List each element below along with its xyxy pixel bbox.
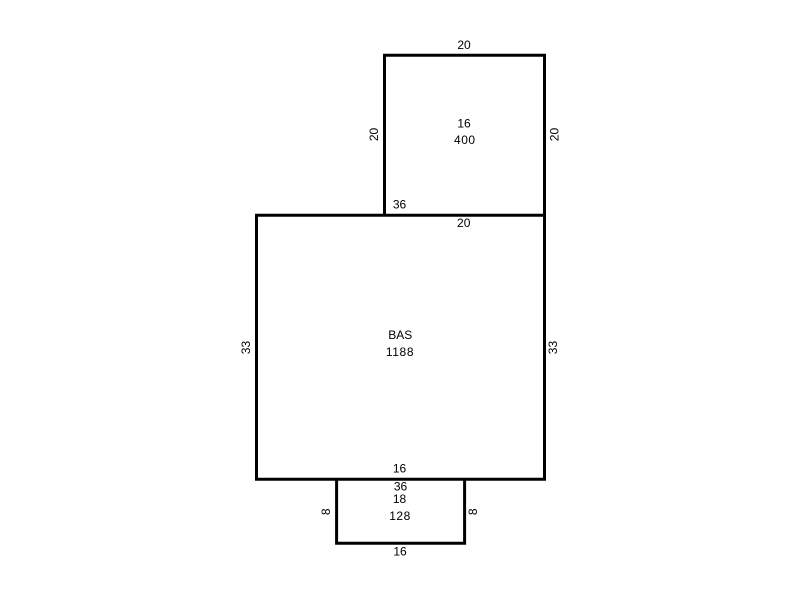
- svg-text:16: 16: [393, 462, 407, 476]
- svg-text:16: 16: [457, 117, 471, 131]
- svg-text:8: 8: [466, 508, 480, 515]
- svg-text:20: 20: [457, 216, 471, 230]
- svg-text:20: 20: [367, 128, 381, 142]
- svg-text:16: 16: [393, 544, 407, 558]
- svg-text:20: 20: [548, 128, 562, 142]
- svg-text:BAS: BAS: [388, 328, 412, 342]
- svg-text:8: 8: [319, 508, 333, 515]
- svg-text:33: 33: [546, 341, 560, 355]
- svg-text:128: 128: [389, 509, 411, 523]
- svg-text:20: 20: [457, 38, 471, 52]
- svg-text:36: 36: [393, 198, 407, 212]
- svg-text:33: 33: [239, 341, 253, 355]
- svg-text:400: 400: [454, 133, 476, 147]
- svg-text:18: 18: [393, 492, 407, 506]
- svg-text:1188: 1188: [386, 345, 414, 359]
